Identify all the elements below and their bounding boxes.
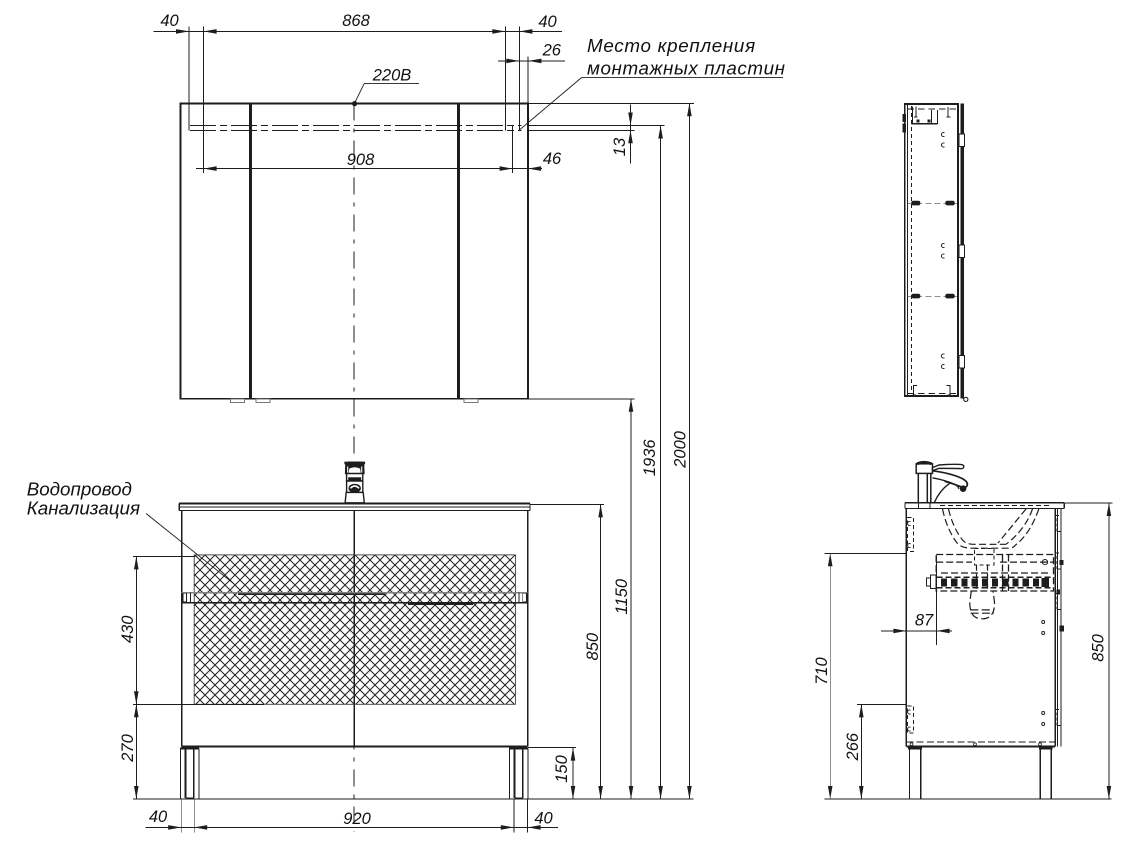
svg-text:Водопровод: Водопровод — [27, 478, 132, 499]
svg-text:710: 710 — [813, 657, 831, 685]
svg-text:87: 87 — [915, 612, 934, 630]
svg-text:монтажных пластин: монтажных пластин — [587, 58, 786, 79]
svg-text:40: 40 — [149, 808, 168, 826]
svg-text:13: 13 — [611, 137, 629, 156]
svg-text:40: 40 — [538, 13, 557, 31]
svg-text:430: 430 — [119, 615, 137, 643]
svg-text:850: 850 — [584, 632, 602, 660]
svg-text:150: 150 — [553, 754, 571, 782]
svg-text:850: 850 — [1090, 633, 1108, 661]
svg-text:270: 270 — [119, 733, 137, 762]
svg-text:1150: 1150 — [613, 578, 631, 614]
svg-text:Канализация: Канализация — [27, 498, 140, 519]
svg-text:220В: 220В — [372, 67, 412, 85]
svg-text:2000: 2000 — [672, 430, 690, 469]
svg-text:908: 908 — [347, 151, 375, 169]
svg-text:40: 40 — [160, 12, 179, 30]
svg-text:26: 26 — [542, 42, 562, 60]
svg-text:Место крепления: Место крепления — [587, 35, 756, 56]
svg-text:920: 920 — [343, 810, 371, 828]
svg-text:40: 40 — [534, 810, 553, 828]
svg-text:266: 266 — [844, 732, 862, 761]
svg-text:1936: 1936 — [641, 439, 659, 477]
svg-text:46: 46 — [543, 150, 562, 168]
svg-text:868: 868 — [342, 12, 370, 30]
